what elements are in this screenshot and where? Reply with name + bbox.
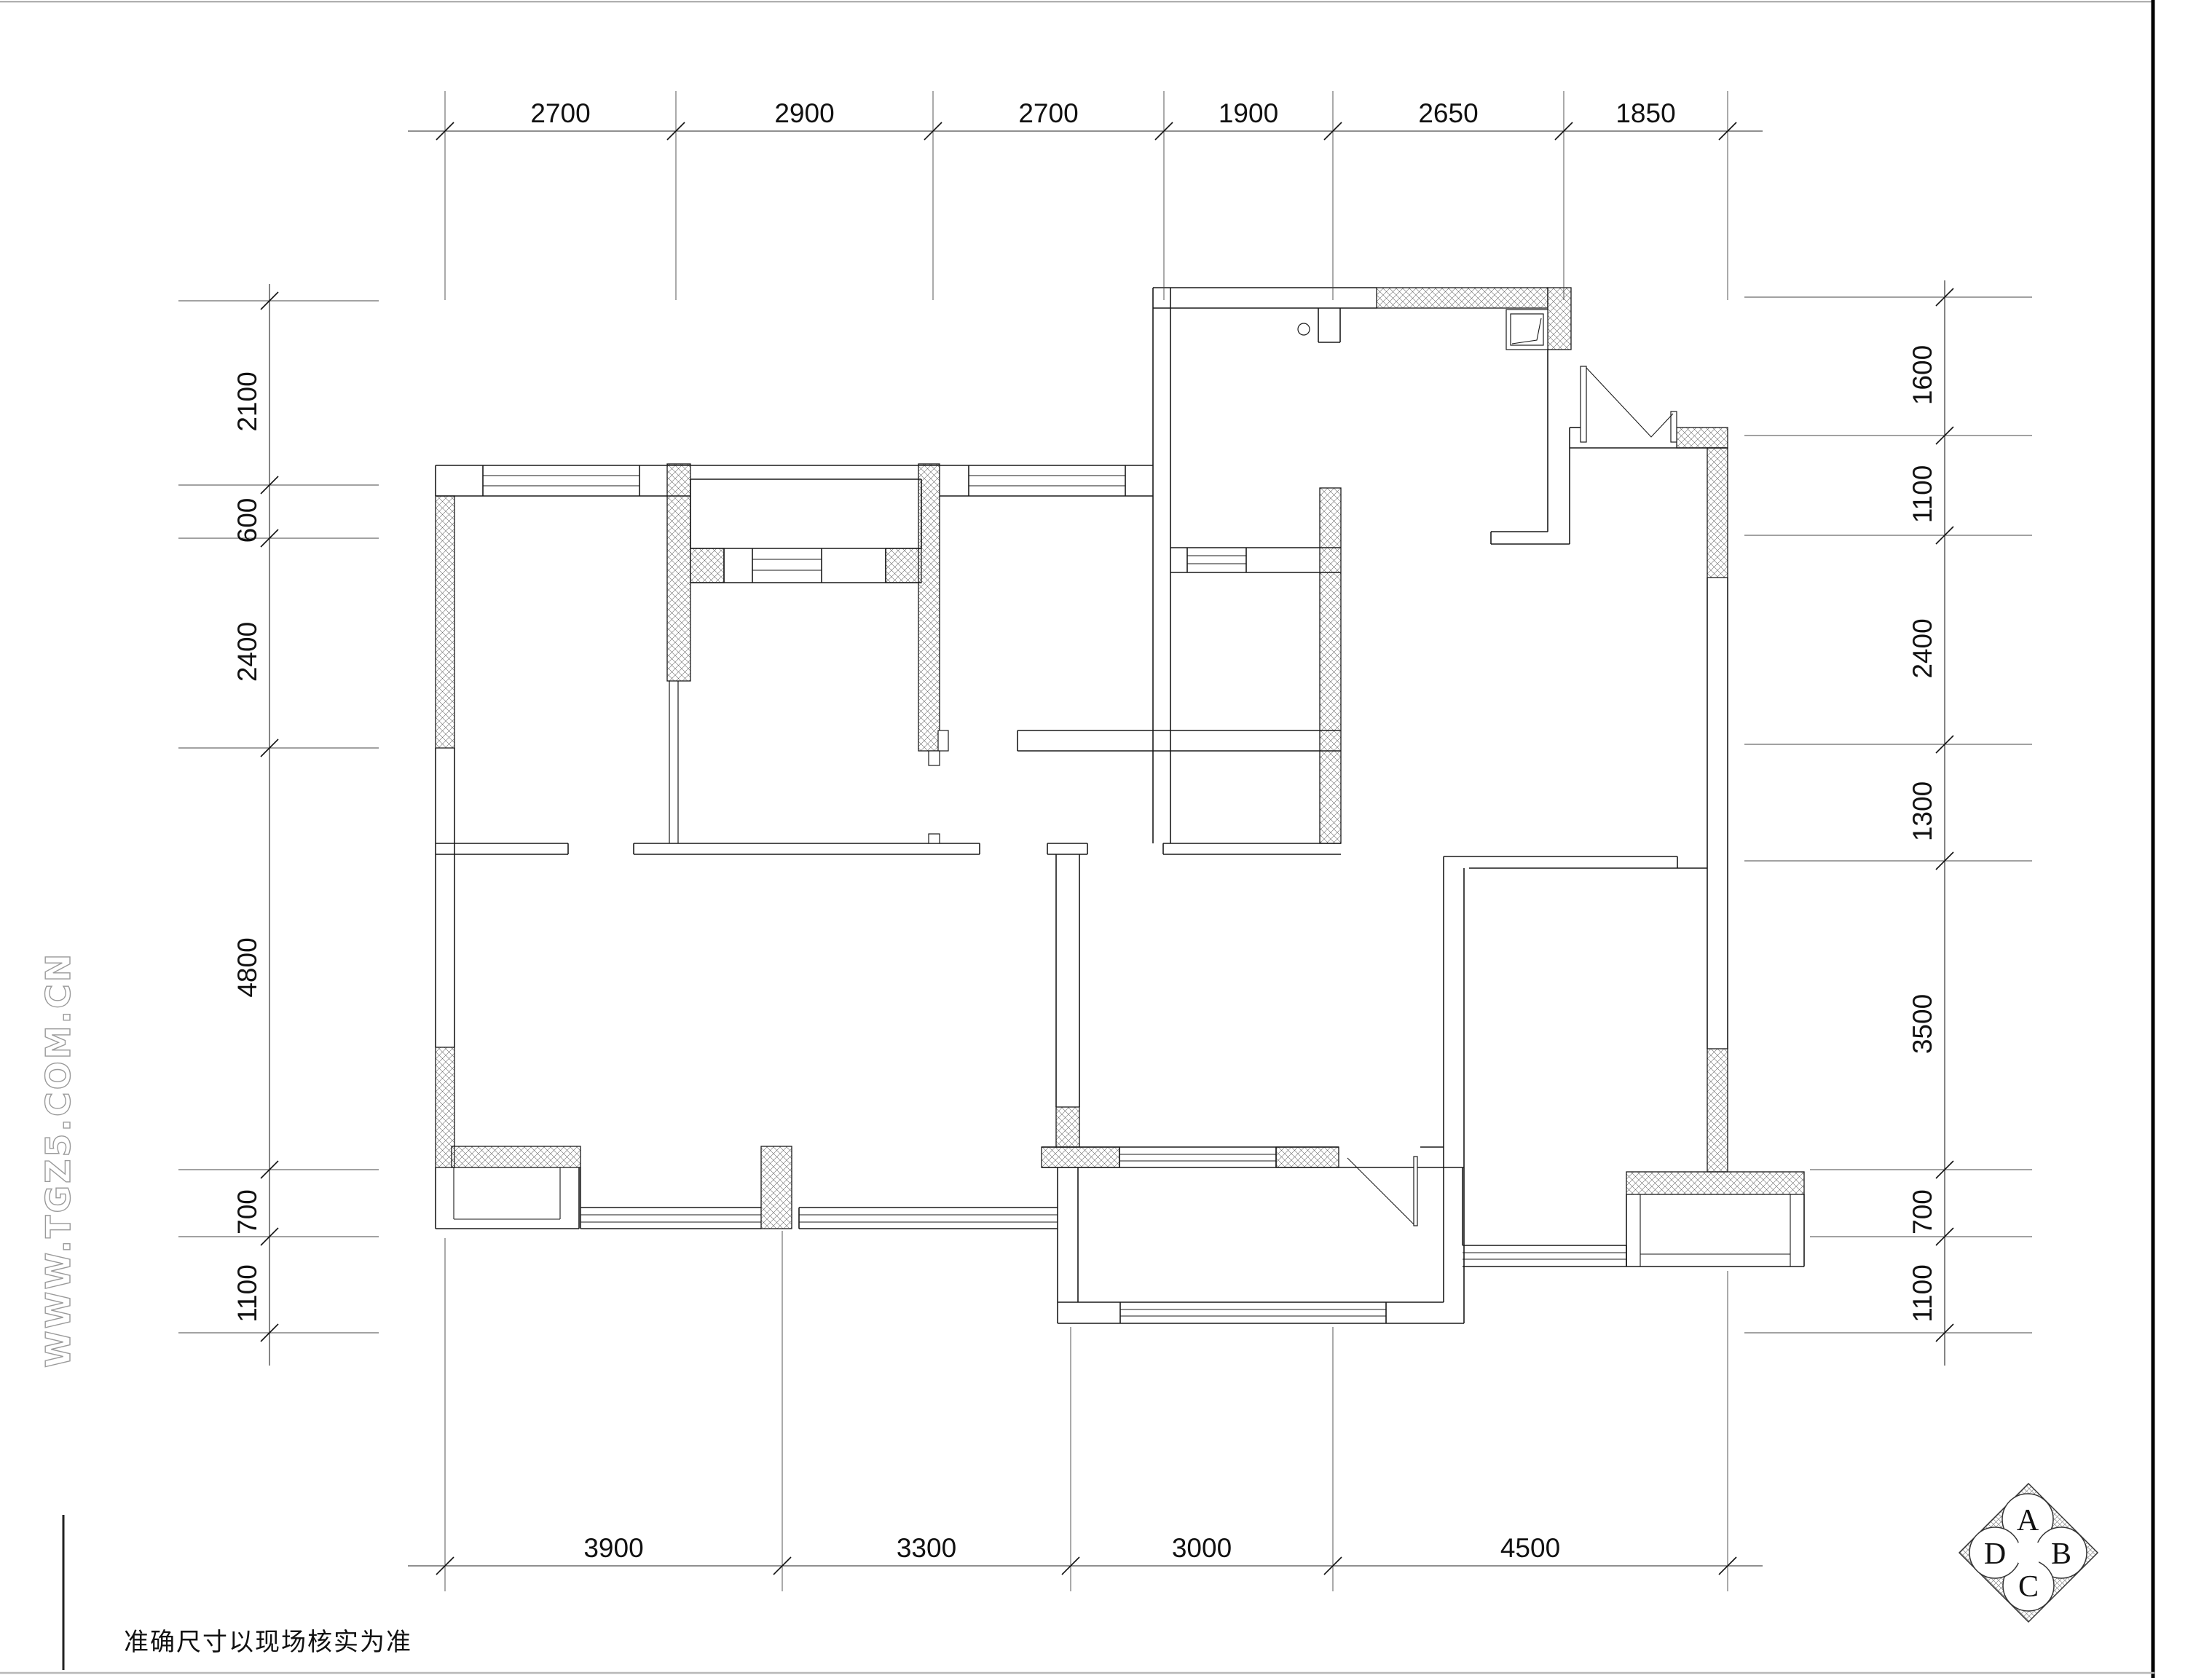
- wall-hatch-layer-shape: [1548, 288, 1571, 350]
- logo-center-square: [2018, 1543, 2039, 1563]
- dim-chain-left-shape: 700: [232, 1189, 262, 1234]
- wall-line-layer-shape: [929, 834, 940, 843]
- dim-chain-right-shape: 1300: [1908, 781, 1937, 841]
- wall-hatch-layer-shape: [1320, 488, 1341, 843]
- wall-hatch-layer-shape: [886, 548, 921, 583]
- logo-letter-b: B: [2051, 1537, 2071, 1571]
- dim-chain-bottom-shape: 3900: [583, 1533, 643, 1563]
- wall-line-layer-shape: [938, 730, 948, 751]
- logo-letter-a: A: [2017, 1504, 2039, 1537]
- dim-chain-top-shape: 2900: [774, 98, 834, 128]
- wall-hatch-layer-shape: [452, 1146, 580, 1167]
- dim-chain-bottom-shape: 3300: [897, 1533, 956, 1563]
- wall-hatch-layer-shape: [1677, 428, 1728, 448]
- wall-line-layer-shape: [929, 751, 940, 765]
- wall-hatch-layer-shape: [1042, 1147, 1119, 1167]
- dim-chain-top-shape: 2700: [530, 98, 590, 128]
- wall-line-layer-shape: [1414, 1157, 1417, 1226]
- wall-hatch-layer-shape: [690, 548, 724, 583]
- wall-hatch-layer-shape: [1626, 1172, 1804, 1194]
- dim-chain-right-shape: 2400: [1908, 618, 1937, 678]
- dim-chain-right-shape: 700: [1908, 1189, 1937, 1234]
- dim-chain-top-shape: 1850: [1615, 98, 1675, 128]
- dim-chain-right-shape: 3500: [1908, 994, 1937, 1054]
- dim-chain-top-shape: 2700: [1018, 98, 1078, 128]
- wall-hatch-layer-shape: [436, 496, 454, 748]
- watermark-text: WWW.TGZ5.COM.CN: [39, 952, 78, 1368]
- dim-chain-right-shape: 1100: [1908, 1264, 1937, 1323]
- paper-background: [0, 0, 2212, 1678]
- wall-hatch-layer-shape: [1707, 1049, 1728, 1172]
- dim-chain-left-shape: 2400: [232, 622, 262, 682]
- site-verification-note: 准确尺寸以现场核实为准: [124, 1628, 412, 1657]
- dim-chain-top-shape: 2650: [1418, 98, 1478, 128]
- wall-line-layer-shape: [1671, 411, 1677, 442]
- dim-chain-left-shape: 4800: [232, 937, 262, 997]
- dim-chain-bottom-shape: 4500: [1500, 1533, 1560, 1563]
- drawing-page: 2700290027001900265018503900330030004500…: [0, 0, 2212, 1678]
- dim-chain-bottom-shape: 3000: [1172, 1533, 1232, 1563]
- dim-chain-left-shape: 1100: [232, 1264, 262, 1323]
- logo-letter-d: D: [1984, 1537, 2006, 1571]
- dim-chain-left-shape: 600: [232, 498, 262, 543]
- wall-hatch-layer-shape: [1276, 1147, 1339, 1167]
- dim-chain-left-shape: 2100: [232, 371, 262, 431]
- wall-hatch-layer-shape: [1377, 288, 1548, 308]
- wall-line-layer-shape: [1581, 366, 1586, 442]
- logo-letter-c: C: [2018, 1570, 2039, 1604]
- wall-hatch-layer-shape: [1056, 1107, 1079, 1147]
- dim-chain-top-shape: 1900: [1219, 98, 1278, 128]
- wall-line-layer-shape: [1511, 314, 1543, 345]
- dim-chain-right-shape: 1600: [1908, 345, 1937, 405]
- wall-hatch-layer-shape: [761, 1146, 792, 1229]
- floorplan-canvas: 2700290027001900265018503900330030004500…: [0, 0, 2212, 1678]
- dim-chain-right-shape: 1100: [1908, 465, 1937, 524]
- wall-hatch-layer-shape: [1707, 448, 1728, 578]
